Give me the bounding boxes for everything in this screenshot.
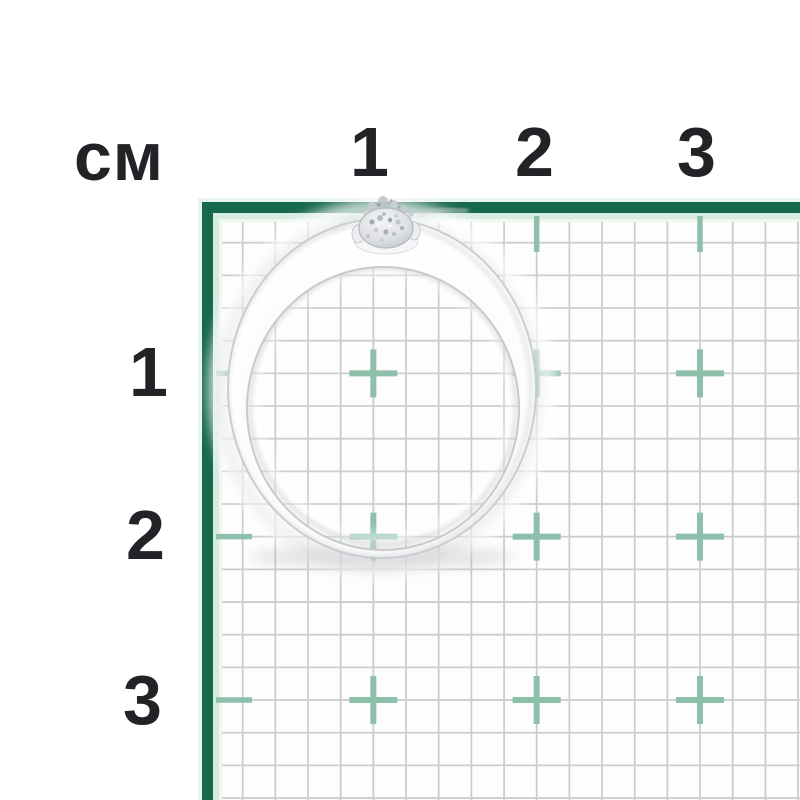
ring-photo [0, 0, 800, 800]
product-photo-stage: см 1 2 3 1 2 3 [0, 0, 800, 800]
gem-dome [359, 208, 413, 248]
